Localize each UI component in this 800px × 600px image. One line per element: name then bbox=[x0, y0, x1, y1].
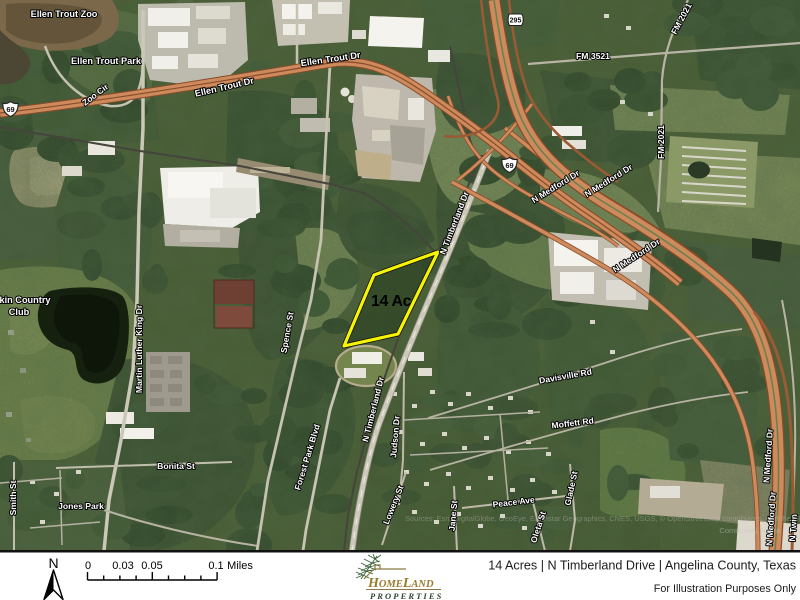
svg-text:N: N bbox=[48, 555, 58, 571]
svg-text:Sources: Esri, DigitalGlobe, G: Sources: Esri, DigitalGlobe, GeoEye, Ear… bbox=[405, 514, 800, 523]
svg-text:0: 0 bbox=[85, 560, 91, 572]
svg-text:Club: Club bbox=[9, 307, 30, 317]
svg-text:0.03: 0.03 bbox=[112, 560, 133, 572]
svg-text:0.05: 0.05 bbox=[141, 560, 162, 572]
svg-text:FM 3521: FM 3521 bbox=[576, 51, 610, 61]
svg-text:Bonita St: Bonita St bbox=[157, 461, 195, 471]
svg-text:Smith St: Smith St bbox=[8, 480, 18, 515]
svg-text:FM 2021: FM 2021 bbox=[656, 125, 666, 159]
svg-text:0.1: 0.1 bbox=[208, 560, 223, 572]
svg-text:Jones Park: Jones Park bbox=[58, 501, 104, 511]
svg-text:69: 69 bbox=[6, 105, 14, 114]
svg-text:For Illustration Purposes Only: For Illustration Purposes Only bbox=[654, 583, 797, 595]
svg-text:PROPERTIES: PROPERTIES bbox=[370, 591, 443, 600]
svg-text:Martin Luther King Dr: Martin Luther King Dr bbox=[134, 304, 144, 393]
svg-text:kin Country: kin Country bbox=[0, 295, 51, 305]
svg-text:14 Ac: 14 Ac bbox=[371, 293, 412, 310]
svg-text:Ellen Trout Zoo: Ellen Trout Zoo bbox=[31, 9, 98, 19]
svg-text:295: 295 bbox=[510, 18, 522, 25]
svg-text:Miles: Miles bbox=[227, 560, 253, 572]
svg-text:Ellen Trout Park: Ellen Trout Park bbox=[71, 56, 142, 66]
svg-text:69: 69 bbox=[505, 161, 513, 170]
svg-text:14 Acres | N Timberland Drive: 14 Acres | N Timberland Drive | Angelina… bbox=[488, 559, 796, 573]
svg-text:HOMELAND: HOMELAND bbox=[367, 576, 434, 591]
svg-text:Community, Vanta: Community, Vanta bbox=[719, 526, 780, 535]
